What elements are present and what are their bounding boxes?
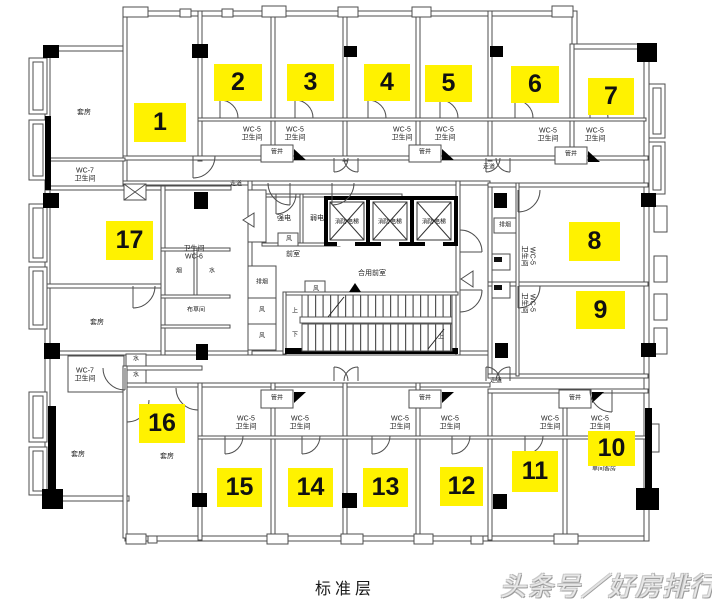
vent-label: 风 [259,307,265,314]
stairs-up-label: 上 [292,308,298,315]
bath-wc5-label: WC-5卫生间 [519,293,536,314]
pipe-shaft-label: 管井 [569,395,581,402]
bath-wc5-label: WC-5卫生间 [290,416,311,433]
shared-anteroom-label: 合用前室 [358,270,386,278]
bath-wc5-label: WC-5卫生间 [440,416,461,433]
watermark: 头条号／好房排行 [500,567,712,604]
vent-label: 风 [313,286,319,293]
floorplan-page: 1 2 3 4 5 6 7 8 9 10 11 12 13 14 15 16 1… [0,0,712,609]
water-shaft-label: 水 [209,268,215,275]
bath-wc7-label: WC-7卫生间 [75,368,96,385]
corridor-label: 走道 [490,378,502,385]
fire-elevator-label: 消防电梯 [422,217,446,226]
anteroom-label: 前室 [286,251,300,259]
pipe-shaft-label: 管井 [271,395,283,402]
bath-wc5-label: WC-5卫生间 [392,127,413,144]
single-room-label: 单间客房 [592,466,616,473]
bath-wc5-label: WC-5卫生间 [242,127,263,144]
suite-label: 套房 [90,319,104,327]
bath-wc5-label: WC-5卫生间 [390,416,411,433]
unit-label-15: 15 [217,468,262,507]
corridor-label: 走道 [230,181,242,188]
bath-wc5-label: WC-5卫生间 [540,416,561,433]
vent-label: 风 [286,236,292,243]
smoke-shaft-label: 烟 [176,268,182,275]
suite-label: 套房 [71,451,85,459]
unit-label-10: 10 [588,431,635,466]
unit-label-6: 6 [511,66,559,103]
bath-wc6-label: 卫生间WC-6 [184,246,205,263]
pipe-shaft-label: 管井 [565,151,577,158]
smoke-extract-label: 排烟 [499,222,511,229]
fire-elevator-label: 消防电梯 [335,217,359,226]
unit-label-8: 8 [569,222,620,261]
bath-wc5-label: WC-5卫生间 [285,127,306,144]
bath-wc5-label: WC-5卫生间 [590,416,611,433]
stairs-down-label: 下 [292,332,298,339]
stairs-up-label: 上 [438,334,444,341]
unit-label-3: 3 [287,64,334,101]
unit-label-12: 12 [440,467,483,506]
suite-label: 套房 [77,109,91,117]
bath-wc5-label: WC-5卫生间 [519,246,536,267]
unit-label-7: 7 [588,78,634,115]
vent-label: 风 [259,333,265,340]
suite-label: 套房 [160,453,174,461]
unit-label-5: 5 [425,65,472,102]
bath-wc5-label: WC-5卫生间 [538,128,559,145]
linen-room-label: 布草间 [187,307,205,314]
water-shaft-label: 水 [133,372,139,379]
water-shaft-label: 水 [133,356,139,363]
strong-power-label: 强电 [277,215,291,223]
unit-label-11: 11 [512,451,558,492]
unit-label-2: 2 [214,64,262,101]
corridor-label: 走道 [483,164,495,171]
unit-label-17: 17 [106,221,153,260]
weak-power-label: 弱电 [310,215,324,223]
unit-label-13: 13 [363,468,408,507]
unit-label-4: 4 [364,64,410,101]
pipe-shaft-label: 管井 [271,149,283,156]
bath-wc5-label: WC-5卫生间 [435,127,456,144]
unit-label-1: 1 [134,103,186,142]
bath-wc5-label: WC-5卫生间 [585,128,606,145]
unit-label-9: 9 [576,291,625,329]
unit-label-14: 14 [288,468,333,507]
smoke-extract-label: 排烟 [256,279,268,286]
unit-label-16: 16 [139,404,185,443]
bath-wc5-label: WC-5卫生间 [236,416,257,433]
fire-elevator-label: 消防电梯 [378,217,402,226]
bath-wc7-label: WC-7卫生间 [75,168,96,185]
pipe-shaft-label: 管井 [419,395,431,402]
pipe-shaft-label: 管井 [419,149,431,156]
floor-title: 标准层 [315,575,375,599]
